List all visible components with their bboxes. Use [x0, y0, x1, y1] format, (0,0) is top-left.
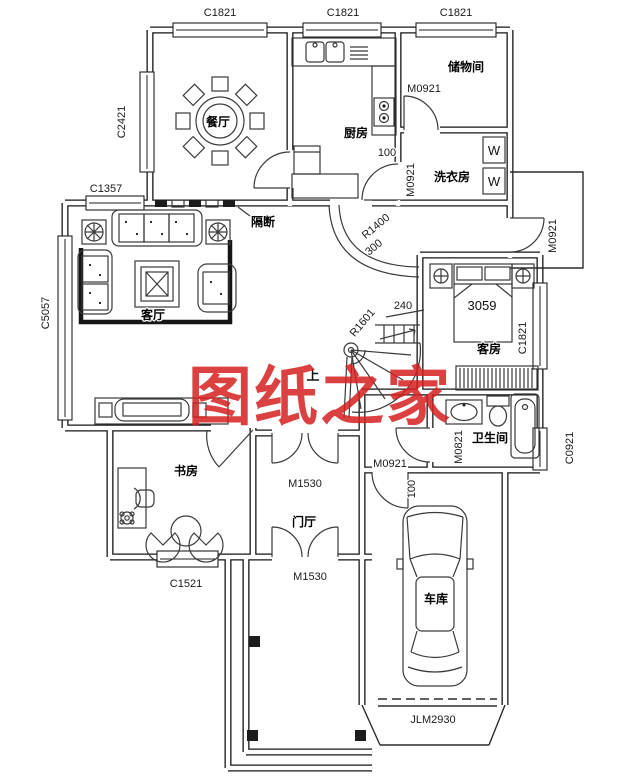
window-living-left	[58, 236, 72, 420]
watermark-text: 图纸之家	[188, 361, 452, 433]
nightstand-left	[430, 264, 452, 288]
kitchen-fridge	[294, 146, 320, 174]
window-label-c1821-dining: C1821	[204, 7, 236, 19]
room-label-study: 书房	[174, 463, 198, 478]
window-label-c1357: C1357	[90, 183, 122, 195]
living-corner-fan-right	[206, 220, 230, 244]
room-label-kitchen: 厨房	[344, 125, 368, 140]
door-study	[207, 430, 253, 467]
door-storage	[404, 96, 438, 130]
floor-plan-page: C1821 C1821 C1821 C2421 C1357 C5057 C152…	[0, 0, 640, 780]
study-desk	[118, 468, 154, 528]
dim-garage-100: 100	[406, 480, 418, 498]
door-dining-kitchen	[254, 152, 290, 188]
dim-r1601: R1601	[348, 307, 378, 340]
door-label-m0921-garage: M0921	[373, 458, 407, 470]
door-label-m0921-laundry: M0921	[405, 163, 417, 197]
room-label-guest: 客房	[476, 341, 501, 356]
room-label-hall: 门厅	[292, 514, 316, 529]
kitchen-stove	[374, 98, 394, 126]
window-top-dining	[173, 23, 267, 37]
sofa-three-seat	[112, 210, 202, 246]
wardrobe	[456, 366, 538, 390]
door-label-m0821: M0821	[453, 430, 465, 464]
door-hall-porch-left	[272, 527, 302, 557]
door-hall-front-left	[272, 433, 302, 463]
window-guest-right	[533, 283, 547, 369]
room-label-dining: 餐厅	[206, 114, 230, 129]
door-label-m1530-front: M1530	[288, 478, 322, 490]
window-label-c0921: C0921	[564, 432, 576, 464]
window-label-c2421: C2421	[116, 106, 128, 138]
window-label-c1821-guest: C1821	[517, 322, 529, 354]
garage-door-line	[378, 699, 497, 706]
washer-bottom-label: W	[488, 174, 501, 189]
room-label-garage: 车库	[424, 591, 448, 606]
door-label-m0921-terrace: M0921	[547, 219, 559, 253]
door-garage-side	[372, 472, 408, 508]
coffee-table	[135, 261, 179, 307]
porch-columns	[247, 636, 366, 741]
window-label-c1821-kitchen: C1821	[327, 7, 359, 19]
window-label-c1521: C1521	[170, 578, 202, 590]
toilet	[487, 396, 509, 426]
door-hall-front-right	[308, 433, 338, 463]
room-label-living: 客厅	[140, 307, 165, 322]
window-dining-left	[140, 72, 154, 172]
appliance-labels: W W	[488, 143, 501, 189]
window-label-c5057: C5057	[40, 297, 52, 329]
floor-plan-drawing: C1821 C1821 C1821 C2421 C1357 C5057 C152…	[0, 0, 640, 780]
room-label-storage: 储物间	[448, 59, 484, 74]
window-top-kitchen	[303, 23, 381, 37]
door-bathroom	[396, 428, 430, 462]
dim-240: 240	[394, 300, 412, 312]
window-study-bottom	[157, 551, 218, 567]
door-label-jlm2930: JLM2930	[410, 714, 455, 726]
window-label-c1821-storage: C1821	[440, 7, 472, 19]
door-label-m1530-porch: M1530	[293, 571, 327, 583]
window-living-top	[86, 196, 144, 210]
dim-kitchen-100: 100	[378, 147, 396, 159]
window-top-storage	[416, 23, 496, 37]
room-labels: 餐厅 厨房 储物间 洗衣房 客厅 客房 卫生间 书房 门厅 车库 隔断 上	[140, 59, 508, 606]
room-label-laundry: 洗衣房	[434, 169, 470, 184]
door-label-m0921-storage: M0921	[407, 83, 441, 95]
dim-bed-3059: 3059	[468, 298, 497, 313]
washer-top-label: W	[488, 143, 501, 158]
annotation-partition: 隔断	[251, 214, 275, 229]
door-terrace	[510, 218, 544, 252]
room-label-bathroom: 卫生间	[472, 430, 508, 445]
living-corner-fan-left	[82, 220, 106, 244]
door-swings	[207, 96, 544, 557]
door-hall-porch-right	[308, 527, 338, 557]
kitchen-cabinet	[292, 174, 358, 198]
door-laundry	[362, 164, 398, 200]
